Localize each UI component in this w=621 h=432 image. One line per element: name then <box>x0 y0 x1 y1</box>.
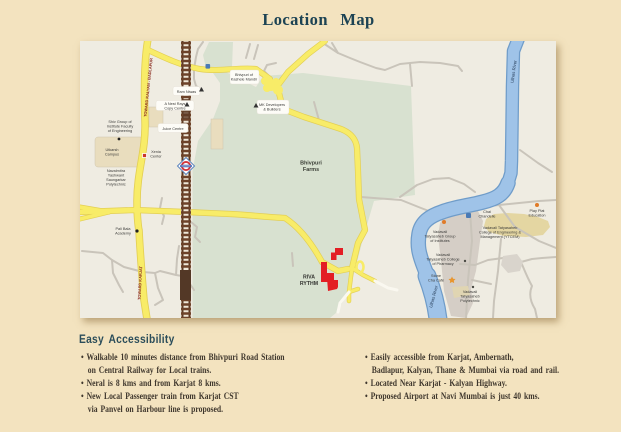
svg-text:RYTHM: RYTHM <box>300 281 318 287</box>
svg-text:Vadavali: Vadavali <box>463 290 477 294</box>
svg-text:Kashele Mandir: Kashele Mandir <box>231 78 258 82</box>
svg-text:Tatyasaheb College: Tatyasaheb College <box>426 258 459 262</box>
svg-text:Pali Bala: Pali Bala <box>116 227 132 231</box>
svg-text:Shiv Group of: Shiv Group of <box>108 120 132 124</box>
svg-text:Ram Niwas: Ram Niwas <box>177 90 197 94</box>
svg-text:Institute Faculty: Institute Faculty <box>107 125 134 129</box>
svg-text:Vadavali Tatyasaheb: Vadavali Tatyasaheb <box>483 226 518 230</box>
svg-text:of Engineering: of Engineering <box>108 129 133 133</box>
svg-text:of Institutes: of Institutes <box>430 239 450 243</box>
svg-text:A Nest Rays: A Nest Rays <box>165 102 186 106</box>
svg-text:Farms: Farms <box>303 167 319 173</box>
svg-text:Juice Centre: Juice Centre <box>162 127 183 131</box>
svg-text:College of Engineering &: College of Engineering & <box>479 231 521 235</box>
svg-text:Tatyasaheb Group: Tatyasaheb Group <box>424 235 455 239</box>
svg-text:Bhivpuri: Bhivpuri <box>300 161 322 167</box>
svg-text:Chai: Chai <box>483 210 491 214</box>
svg-text:Center: Center <box>150 155 162 159</box>
svg-text:Campus: Campus <box>105 153 119 157</box>
svg-text:Navalmitra: Navalmitra <box>107 169 126 173</box>
svg-text:Xenia: Xenia <box>151 150 162 154</box>
svg-text:Polytechnic: Polytechnic <box>106 183 126 187</box>
svg-text:Management (YTCEM): Management (YTCEM) <box>480 235 520 239</box>
svg-text:Stone: Stone <box>431 274 441 278</box>
svg-text:of Pharmacy: of Pharmacy <box>432 262 453 266</box>
svg-text:RIVA: RIVA <box>303 275 315 281</box>
svg-text:Copy Centre: Copy Centre <box>164 107 185 111</box>
svg-text:Saungarkar: Saungarkar <box>106 178 126 182</box>
svg-text:Tatyasaheb: Tatyasaheb <box>460 295 479 299</box>
svg-text:& Builders: & Builders <box>263 108 280 112</box>
svg-text:Academy: Academy <box>115 232 131 236</box>
svg-text:Cha Café: Cha Café <box>428 279 444 283</box>
svg-text:Utkarsh: Utkarsh <box>105 148 118 152</box>
svg-text:Education: Education <box>529 214 546 218</box>
svg-text:Polytechnic: Polytechnic <box>460 299 480 303</box>
svg-text:MK Developers: MK Developers <box>259 103 285 107</box>
svg-text:Play Plat: Play Plat <box>530 209 546 213</box>
svg-text:Yashwant: Yashwant <box>108 174 125 178</box>
svg-text:Bhivpuri of: Bhivpuri of <box>235 73 254 77</box>
svg-text:Chandelle: Chandelle <box>478 215 495 219</box>
svg-text:Vadavali: Vadavali <box>433 230 447 234</box>
svg-text:Vadavali: Vadavali <box>436 253 450 257</box>
